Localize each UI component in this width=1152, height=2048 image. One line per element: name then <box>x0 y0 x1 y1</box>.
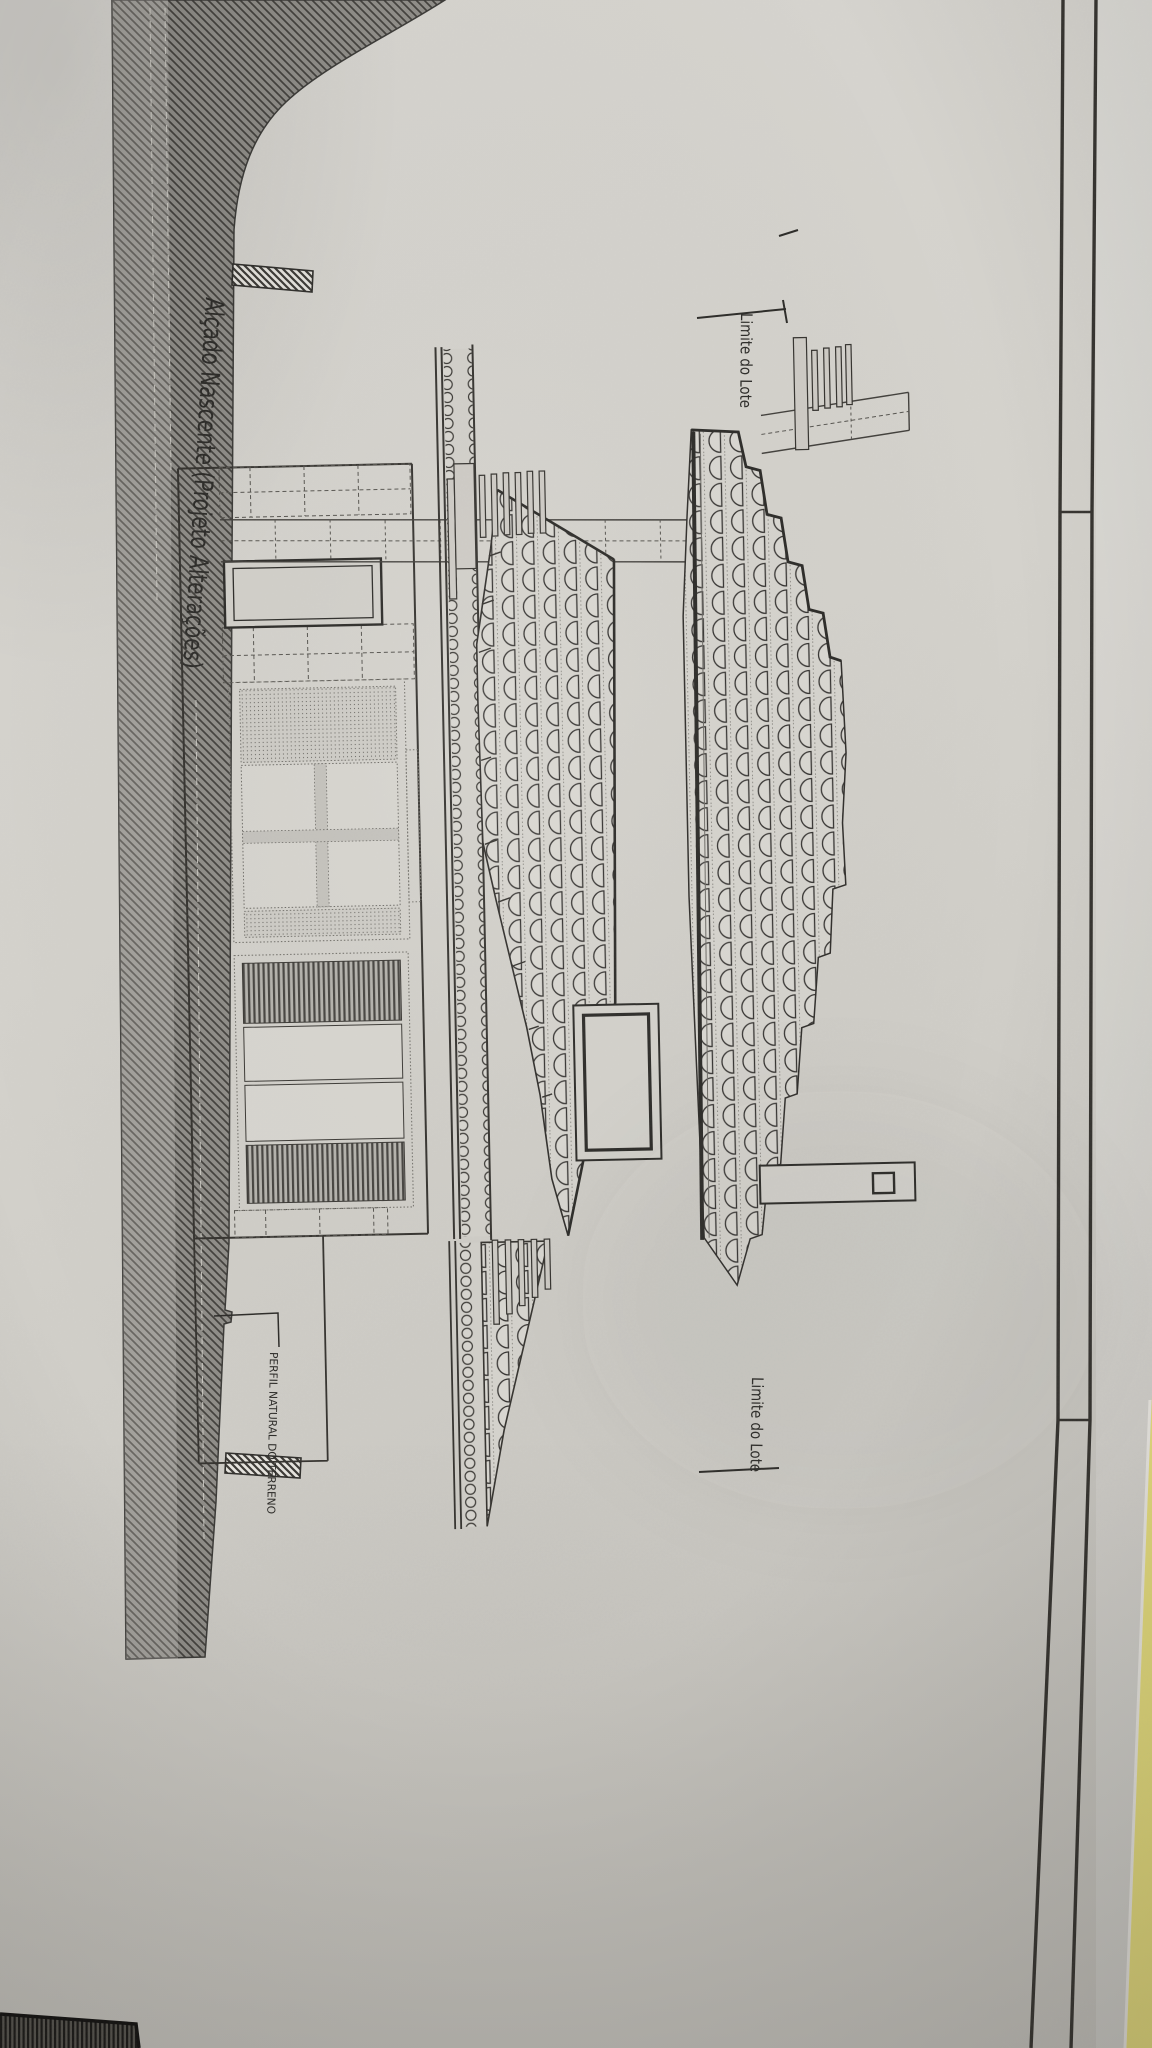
photo-of-elevation-drawing: Alçado Nascente (Projeto Alterações) <box>0 0 1152 2048</box>
elevation-photo-canvas: Alçado Nascente (Projeto Alterações) <box>0 0 1152 2048</box>
paper-grain <box>0 0 1152 2048</box>
